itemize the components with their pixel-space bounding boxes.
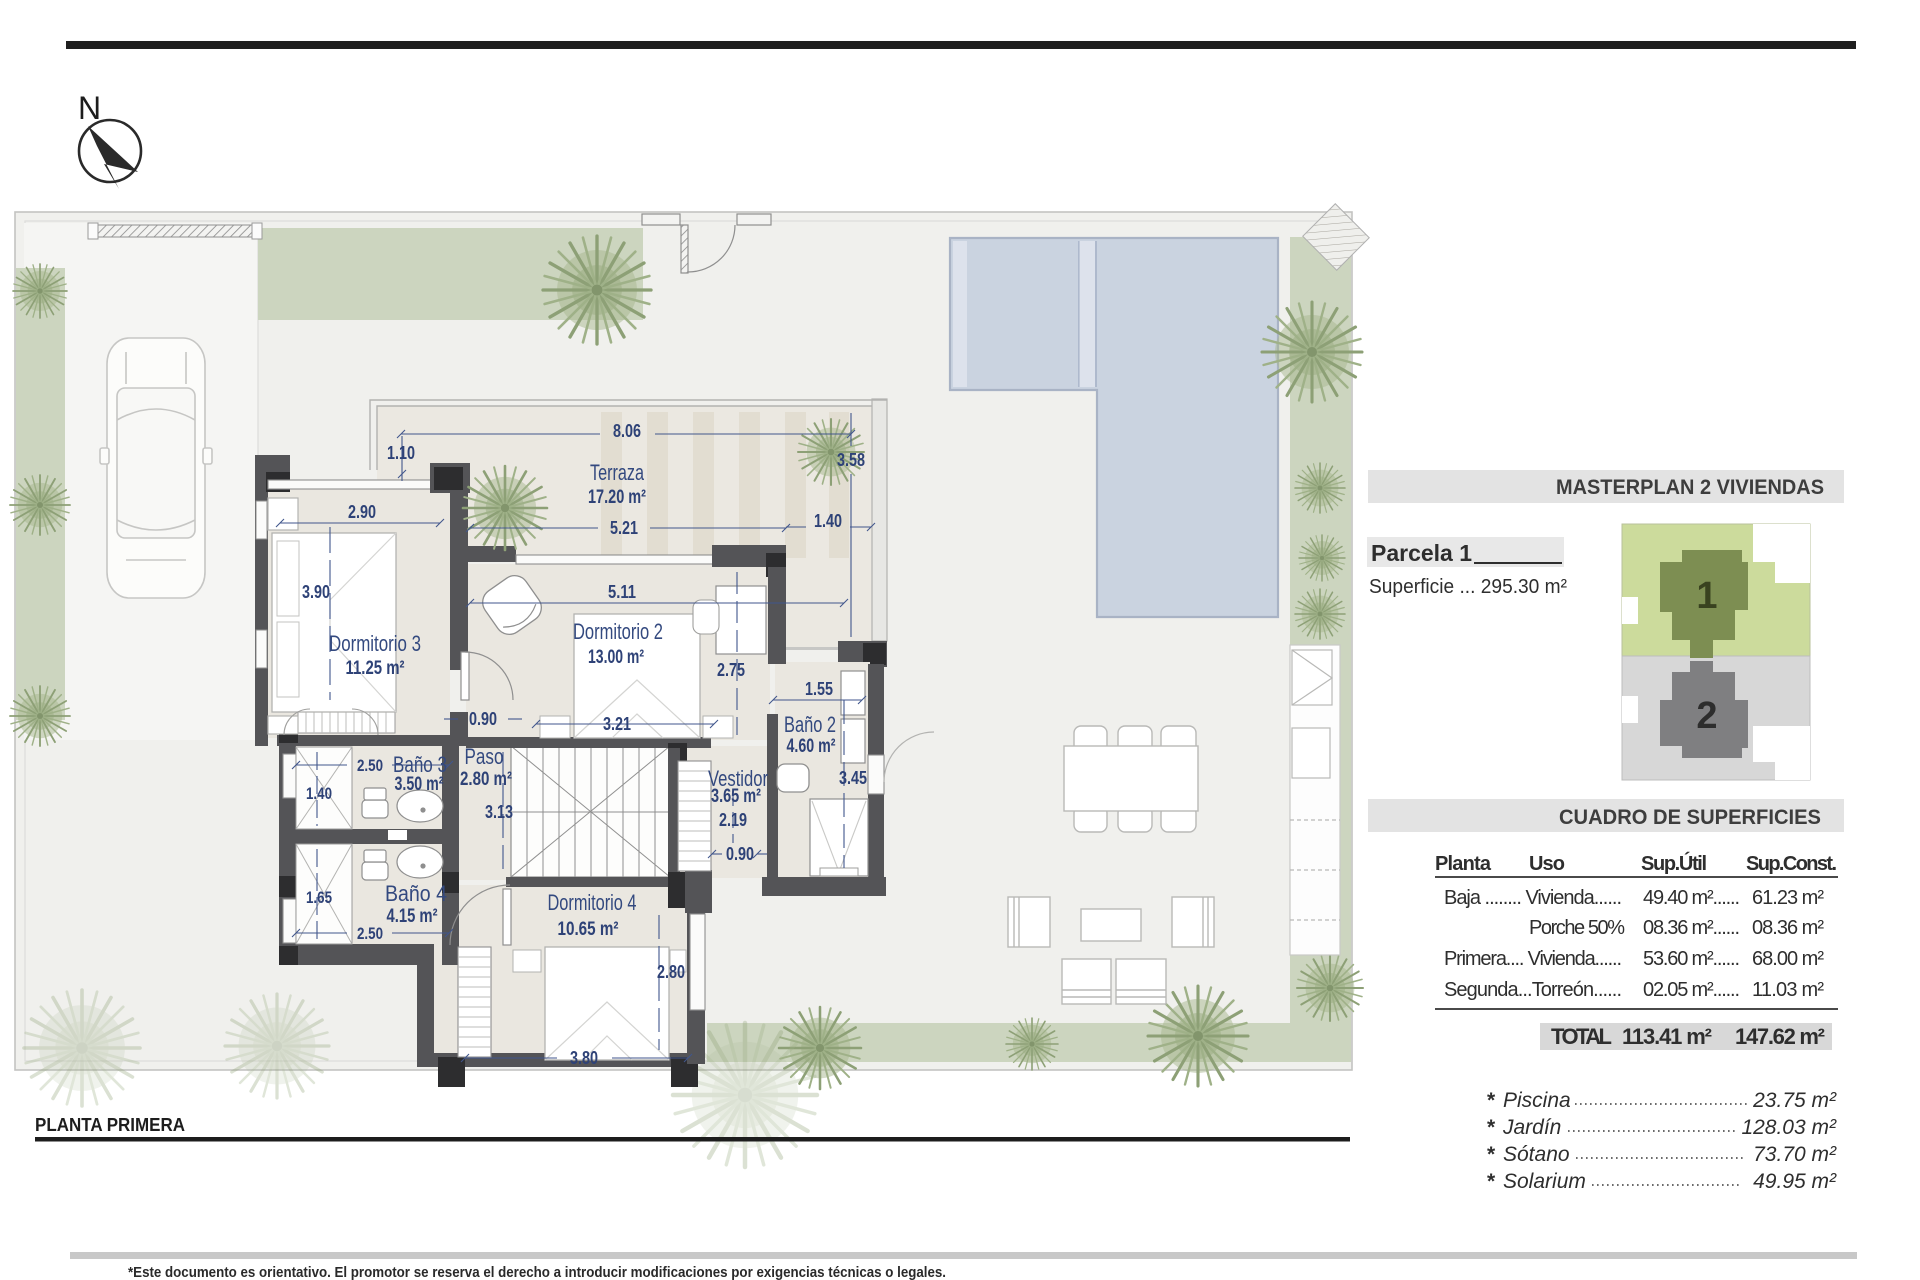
svg-text:1: 1 (1696, 575, 1717, 617)
svg-text:Jardín: Jardín (1502, 1116, 1561, 1139)
svg-text:Solarium: Solarium (1503, 1170, 1586, 1193)
svg-text:*: * (1487, 1089, 1496, 1112)
svg-text:PLANTA PRIMERA: PLANTA PRIMERA (35, 1115, 185, 1135)
svg-text:*: * (1487, 1170, 1496, 1193)
svg-text:02.05 m²......: 02.05 m²...... (1643, 979, 1740, 1001)
svg-text:147.62 m²: 147.62 m² (1735, 1024, 1825, 1049)
svg-text:Superficie ... 295.30 m²: Superficie ... 295.30 m² (1369, 576, 1567, 598)
svg-text:3.90: 3.90 (302, 582, 330, 602)
svg-text:Terraza: Terraza (590, 460, 645, 485)
svg-text:Sup.Útil: Sup.Útil (1641, 851, 1707, 875)
svg-text:73.70 m²: 73.70 m² (1753, 1143, 1837, 1166)
svg-text:1.40: 1.40 (814, 511, 842, 531)
svg-text:0.90: 0.90 (469, 709, 497, 729)
svg-text:2.50: 2.50 (357, 756, 383, 775)
svg-text:8.06: 8.06 (613, 421, 641, 441)
svg-text:49.40 m²......: 49.40 m²...... (1643, 887, 1740, 909)
svg-text:Baja ........ Vivienda......: Baja ........ Vivienda...... (1444, 887, 1622, 909)
svg-text:128.03 m²: 128.03 m² (1741, 1116, 1837, 1139)
svg-text:Baño 2: Baño 2 (784, 712, 836, 737)
svg-text:1.65: 1.65 (306, 888, 332, 907)
svg-text:13.00 m²: 13.00 m² (588, 647, 644, 668)
svg-text:Sup.Const.: Sup.Const. (1746, 853, 1837, 875)
svg-text:2.19: 2.19 (719, 810, 747, 830)
svg-text:1.10: 1.10 (387, 443, 415, 463)
svg-text:Dormitorio 4: Dormitorio 4 (548, 890, 637, 915)
svg-text:2.80: 2.80 (657, 962, 685, 982)
svg-text:49.95 m²: 49.95 m² (1753, 1170, 1837, 1193)
svg-text:3.13: 3.13 (485, 802, 513, 822)
svg-text:5.21: 5.21 (610, 518, 638, 538)
svg-text:N: N (78, 90, 101, 126)
svg-text:08.36 m²: 08.36 m² (1752, 917, 1824, 939)
svg-text:CUADRO DE SUPERFICIES: CUADRO DE SUPERFICIES (1559, 806, 1821, 829)
svg-text:3.50 m²: 3.50 m² (395, 774, 444, 795)
svg-text:3.45: 3.45 (839, 768, 867, 788)
svg-text:4.15 m²: 4.15 m² (387, 906, 438, 927)
svg-text:11.03 m²: 11.03 m² (1752, 979, 1824, 1001)
svg-text:Baño 4: Baño 4 (385, 881, 447, 906)
svg-text:23.75 m²: 23.75 m² (1752, 1089, 1837, 1112)
svg-text:68.00 m²: 68.00 m² (1752, 948, 1824, 970)
svg-text:Dormitorio 2: Dormitorio 2 (573, 619, 663, 644)
svg-text:2.80 m²: 2.80 m² (460, 769, 512, 790)
svg-text:0.90: 0.90 (726, 844, 754, 864)
svg-text:MASTERPLAN 2 VIVIENDAS: MASTERPLAN 2 VIVIENDAS (1556, 476, 1824, 499)
svg-text:*: * (1487, 1116, 1496, 1139)
svg-text:3.58: 3.58 (837, 450, 865, 470)
svg-text:Parcela 1: Parcela 1 (1371, 540, 1472, 566)
svg-text:3.21: 3.21 (603, 714, 631, 734)
svg-text:2: 2 (1696, 695, 1717, 737)
svg-text:2.75: 2.75 (717, 660, 745, 680)
svg-text:17.20 m²: 17.20 m² (588, 487, 646, 508)
svg-text:Segunda...Torreón......: Segunda...Torreón...... (1444, 979, 1622, 1001)
svg-text:Uso: Uso (1529, 853, 1565, 875)
svg-text:3.65 m²: 3.65 m² (711, 786, 761, 807)
svg-text:Planta: Planta (1435, 853, 1492, 875)
svg-text:Primera.... Vivienda......: Primera.... Vivienda...... (1444, 948, 1622, 970)
svg-text:Dormitorio 3: Dormitorio 3 (329, 631, 421, 656)
svg-text:Sótano: Sótano (1503, 1143, 1570, 1166)
svg-text:08.36 m²......: 08.36 m²...... (1643, 917, 1740, 939)
svg-text:2.50: 2.50 (357, 924, 383, 943)
svg-text:113.41 m²: 113.41 m² (1622, 1024, 1712, 1049)
svg-text:10.65 m²: 10.65 m² (558, 919, 619, 940)
svg-text:61.23 m²: 61.23 m² (1752, 887, 1824, 909)
svg-text:Piscina: Piscina (1503, 1089, 1571, 1112)
svg-text:1.40: 1.40 (306, 784, 332, 803)
svg-text:*: * (1487, 1143, 1496, 1166)
svg-text:Porche 50%: Porche 50% (1529, 917, 1625, 939)
svg-text:1.55: 1.55 (805, 679, 833, 699)
svg-text:11.25 m²: 11.25 m² (346, 658, 405, 679)
svg-text:Paso: Paso (465, 744, 504, 769)
svg-text:TOTAL: TOTAL (1551, 1024, 1612, 1049)
svg-text:*Este documento es orientativo: *Este documento es orientativo. El promo… (128, 1264, 946, 1280)
svg-text:3.80: 3.80 (570, 1048, 598, 1068)
svg-text:2.90: 2.90 (348, 502, 376, 522)
svg-text:4.60 m²: 4.60 m² (787, 736, 836, 757)
svg-text:5.11: 5.11 (608, 582, 636, 602)
svg-text:53.60 m²......: 53.60 m²...... (1643, 948, 1740, 970)
